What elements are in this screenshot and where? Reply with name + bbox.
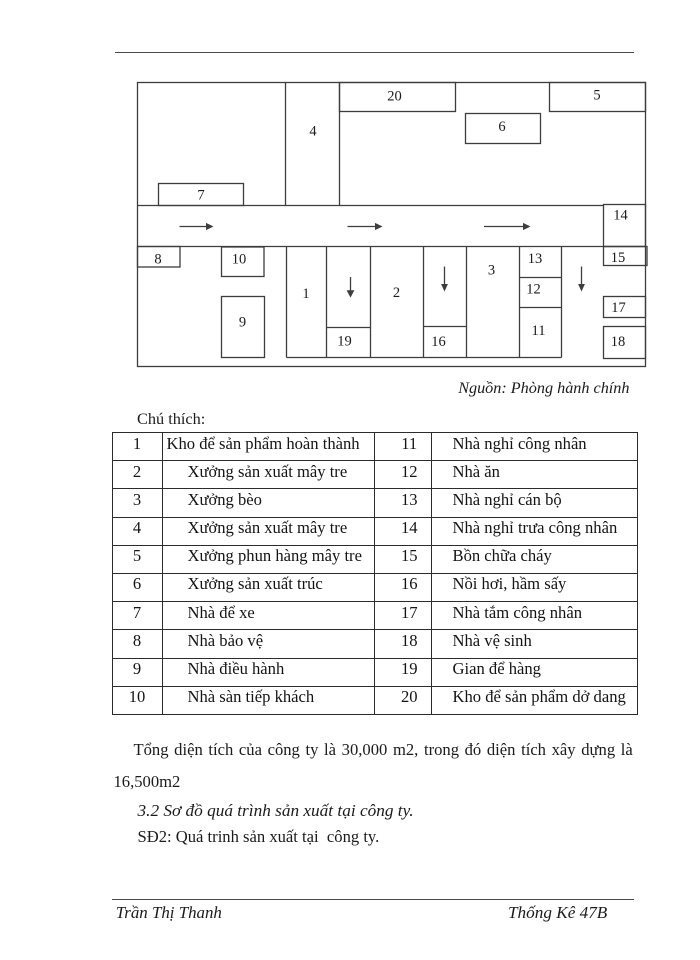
svg-text:11: 11 [532, 323, 546, 339]
svg-text:2: 2 [393, 285, 400, 301]
svg-text:17: 17 [611, 300, 626, 316]
svg-text:15: 15 [611, 250, 626, 266]
svg-text:14: 14 [613, 208, 628, 224]
svg-text:6: 6 [498, 119, 505, 135]
svg-text:7: 7 [197, 188, 204, 204]
svg-text:13: 13 [528, 251, 543, 267]
svg-text:5: 5 [593, 88, 600, 104]
svg-text:4: 4 [309, 124, 317, 140]
svg-text:10: 10 [232, 252, 247, 268]
svg-text:20: 20 [387, 89, 402, 105]
svg-text:18: 18 [611, 334, 626, 350]
svg-text:12: 12 [526, 282, 541, 298]
svg-text:16: 16 [431, 334, 446, 350]
svg-text:19: 19 [337, 334, 352, 350]
svg-text:8: 8 [154, 252, 161, 268]
svg-text:3: 3 [488, 263, 495, 279]
svg-text:1: 1 [302, 286, 309, 302]
svg-text:9: 9 [239, 315, 246, 331]
